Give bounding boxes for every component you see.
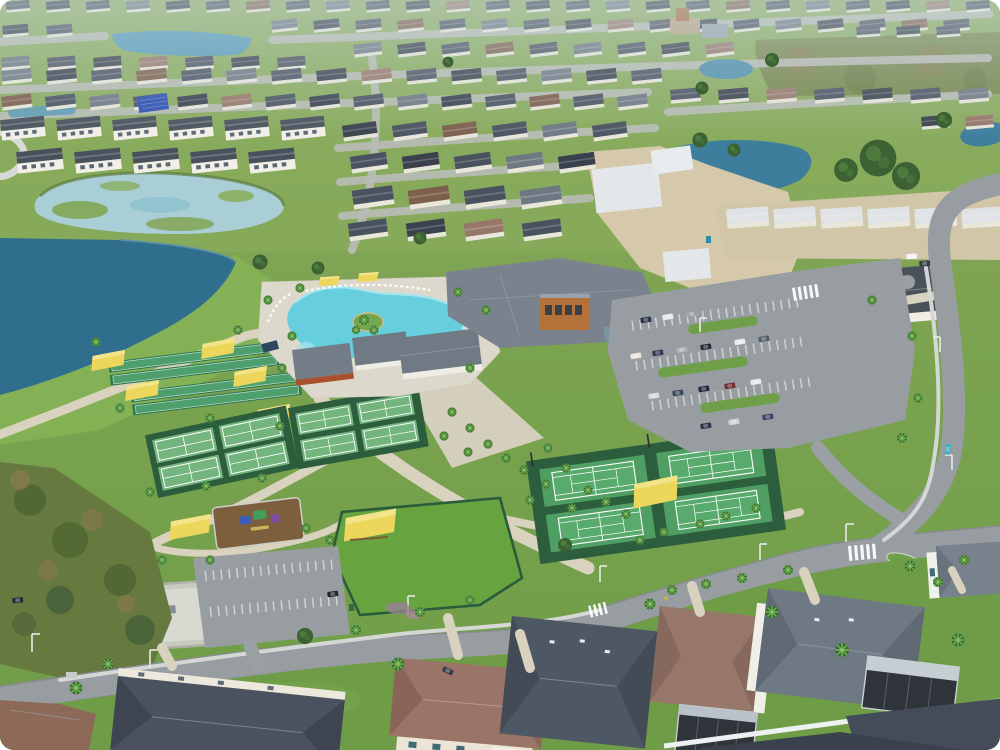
palm-tree (301, 523, 310, 532)
window (138, 672, 144, 677)
dry-patch (38, 560, 58, 580)
house (820, 206, 863, 228)
palm-tree (519, 465, 528, 474)
palm-tree (601, 497, 610, 506)
scrub-bush (52, 522, 88, 558)
scrub-bush (104, 564, 136, 596)
algae-pond (35, 173, 284, 234)
parking-asphalt (193, 546, 350, 648)
palm-tree (904, 560, 915, 571)
tower-window (575, 305, 582, 315)
palm-tree (263, 295, 272, 304)
cabana-building (292, 343, 354, 386)
mailbox-pad (66, 672, 77, 678)
palm-tree (721, 511, 730, 520)
skylight (814, 618, 819, 622)
algae-patch (52, 201, 108, 219)
palm-tree (415, 607, 425, 617)
palm-tree (115, 403, 124, 412)
palm-tree (233, 325, 242, 334)
palm-tree (635, 535, 644, 544)
palm-tree (359, 315, 369, 325)
oak-tree (892, 162, 920, 190)
palm-tree (70, 682, 83, 695)
oak-tree (696, 82, 709, 95)
portable-toilet (706, 236, 711, 243)
palm-tree (287, 331, 296, 340)
oak-tree (765, 53, 779, 67)
palm-tree (205, 413, 214, 422)
palm-tree (465, 363, 474, 372)
palm-tree (102, 658, 113, 669)
palm-tree (439, 431, 448, 440)
house (961, 206, 1000, 228)
palm-tree (543, 443, 552, 452)
palm-tree (275, 421, 284, 430)
palm-tree (257, 473, 266, 482)
scrub-bush (46, 586, 74, 614)
house (867, 206, 910, 228)
algae-patch (146, 217, 214, 231)
tower-window (545, 305, 552, 315)
palm-tree (369, 325, 378, 334)
aerial-photo-card (0, 0, 1000, 750)
window (408, 741, 416, 748)
skylight (580, 639, 585, 643)
oak-tree (692, 132, 707, 147)
dry-patch (81, 509, 103, 531)
palm-tree (501, 453, 510, 462)
palm-tree (463, 447, 472, 456)
trash-bin (349, 604, 354, 611)
pool-canopy (357, 272, 378, 282)
window (432, 744, 440, 750)
oak-tree (414, 232, 427, 245)
play-structure (270, 514, 280, 523)
car (919, 260, 930, 266)
palm-tree (91, 337, 100, 346)
window (218, 680, 224, 685)
aerial-photo-of-community (0, 0, 1000, 750)
car (906, 253, 917, 259)
palm-tree (295, 283, 304, 292)
window (267, 686, 273, 691)
lot-entrance (250, 646, 258, 666)
palm-tree (644, 598, 655, 609)
palm-tree (583, 485, 592, 494)
palm-tree (447, 407, 456, 416)
palm-tree (695, 519, 704, 528)
car (12, 597, 24, 604)
play-structure (253, 509, 267, 520)
event-lawn (332, 498, 522, 615)
dry-patch (10, 470, 30, 490)
palm-tree (481, 305, 490, 314)
atmospheric-haze (0, 0, 1000, 145)
play-structure (239, 515, 251, 524)
oak-tree (834, 158, 858, 182)
palm-tree (465, 423, 474, 432)
palm-tree (766, 606, 779, 619)
palm-tree (145, 487, 154, 496)
palm-tree (621, 509, 630, 518)
palm-tree (205, 555, 214, 564)
pond-highlight (130, 197, 190, 213)
oak-tree (558, 538, 572, 552)
skylight (549, 640, 554, 644)
palm-tree (465, 595, 474, 604)
skylight (849, 618, 854, 622)
house-under-construction (663, 248, 711, 282)
palm-tree (525, 495, 534, 504)
tower-window (565, 305, 572, 315)
palm-tree (352, 326, 360, 334)
palm-tree (325, 535, 334, 544)
house (773, 206, 816, 228)
palm-tree (277, 363, 286, 372)
oak-tree (728, 144, 741, 157)
pool-canopy (318, 276, 339, 286)
palm-tree (933, 577, 943, 587)
palm-tree (157, 555, 166, 564)
palm-tree (907, 331, 916, 340)
palm-tree (561, 463, 570, 472)
oak-tree (297, 628, 313, 644)
algae-patch (218, 190, 254, 202)
palm-tree (751, 503, 760, 512)
palm-tree (783, 565, 793, 575)
window (178, 676, 184, 681)
palm-tree (453, 287, 462, 296)
palm-tree (659, 527, 668, 536)
palm-tree (351, 625, 361, 635)
algae-patch (100, 181, 140, 191)
oak-tree (443, 57, 454, 68)
oak-tree (252, 254, 267, 269)
house (726, 206, 769, 228)
palm-tree (392, 658, 405, 671)
house-under-construction (592, 163, 662, 214)
tower-roof-cap (540, 294, 590, 298)
palm-tree (897, 433, 907, 443)
scrub-bush (125, 615, 155, 645)
oak-tree (936, 112, 952, 128)
door (930, 568, 936, 576)
skylight (605, 650, 610, 654)
oak-tree (312, 262, 325, 275)
palm-tree (952, 634, 965, 647)
scrub-bush (12, 612, 36, 636)
palm-tree (667, 585, 677, 595)
palm-tree (959, 555, 969, 565)
car (945, 444, 951, 455)
palm-tree (567, 503, 576, 512)
palm-tree (483, 439, 492, 448)
road-drain (664, 596, 668, 600)
tower-window (555, 305, 562, 315)
clubhouse-tower (540, 294, 590, 330)
palm-tree (737, 573, 747, 583)
palm-tree (867, 295, 876, 304)
oak-tree (860, 140, 897, 177)
dry-patch (117, 595, 135, 613)
palm-tree (913, 393, 922, 402)
palm-tree (201, 481, 210, 490)
window (456, 746, 464, 750)
palm-tree (835, 643, 849, 657)
palm-tree (541, 479, 550, 488)
palm-tree (701, 579, 711, 589)
